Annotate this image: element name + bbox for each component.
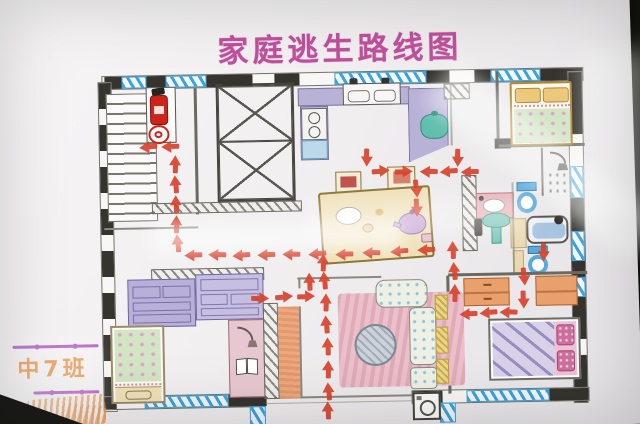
route-arrow-down (452, 148, 465, 167)
route-arrow-up (303, 273, 315, 292)
route-arrow-left (257, 249, 276, 261)
route-arrow-left (459, 308, 478, 320)
photo-background: 家庭逃生路线图 (0, 0, 640, 424)
route-arrow-left (362, 247, 381, 260)
route-arrow-up (171, 234, 184, 254)
route-arrow-left (479, 306, 499, 319)
route-arrow-left (439, 165, 459, 178)
route-arrow-right (370, 164, 390, 177)
route-arrow-left (282, 248, 301, 261)
route-arrow-down (361, 147, 374, 166)
route-arrow-up (170, 195, 182, 214)
route-arrow-down (410, 178, 423, 198)
route-arrow-down (411, 198, 423, 217)
route-arrow-up (170, 215, 183, 234)
route-arrow-down (537, 242, 550, 261)
route-arrow-up (448, 262, 461, 282)
route-arrow-up (322, 401, 334, 420)
route-arrow-up (321, 337, 333, 356)
route-arrow-left (420, 166, 439, 179)
route-arrow-right (296, 290, 315, 302)
route-arrow-left (335, 248, 354, 260)
route-arrow-up (448, 284, 461, 303)
route-arrow-left (184, 249, 203, 261)
route-arrow-left (499, 306, 518, 319)
route-arrow-left (232, 249, 252, 262)
route-arrow-left (208, 249, 227, 262)
route-arrow-up (322, 382, 335, 402)
route-arrow-up (169, 175, 182, 195)
route-arrow-up (320, 315, 333, 335)
route-arrow-up (447, 241, 459, 260)
route-arrow-left (417, 244, 436, 256)
route-arrow-right (274, 290, 294, 303)
route-arrow-left (390, 245, 410, 258)
route-arrow-right (394, 165, 413, 177)
route-arrow-down (518, 289, 530, 308)
route-arrow-up (322, 360, 335, 379)
escape-route (0, 0, 640, 424)
route-arrow-up (169, 155, 182, 174)
drawing: 家庭逃生路线图 (0, 0, 640, 424)
route-arrow-up (317, 253, 330, 272)
route-arrow-left (161, 141, 180, 153)
route-arrow-up (319, 293, 332, 312)
route-arrow-right (250, 292, 269, 305)
route-arrow-left (461, 166, 480, 178)
route-arrow-down (518, 266, 531, 286)
route-arrow-left (308, 247, 328, 260)
route-arrow-left (139, 141, 159, 154)
route-arrow-up (318, 271, 331, 291)
